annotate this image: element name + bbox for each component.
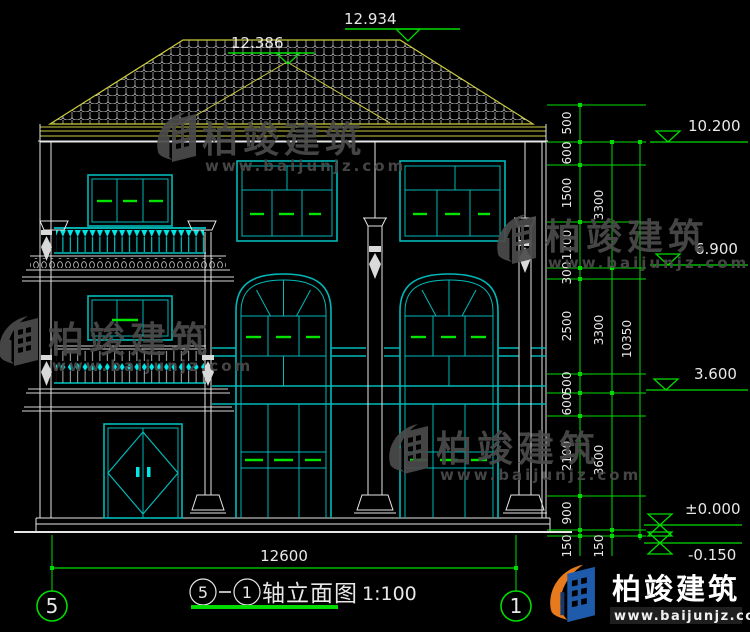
brand-logo-icon [550,565,595,623]
dim-label: 500 [560,112,574,135]
door-handle [147,467,151,477]
grid-bubble-left: 5 [37,591,67,621]
title-underline [191,605,338,609]
cornice-band-lower [22,389,234,411]
dim-chain-mid: 3300 3300 3600 150 [592,140,614,557]
title-grid-end: 1 [242,583,252,602]
dim-label: 150 [560,535,574,558]
dim-label: 900 [560,502,574,525]
ridge-low-label: 12.386 [231,34,284,52]
watermark-logo-icon [497,214,536,264]
watermark-brand: 柏竣建筑 [48,320,212,361]
dim-label: 600 [560,142,574,165]
elevation-marker-10200: 10.200 [650,117,748,142]
watermark-brand: 柏竣建筑 [545,217,709,258]
title-grid-start: 5 [198,583,208,602]
entry-door [104,424,182,518]
watermark-3: 柏竣建筑 www.baijunjz.com [0,316,253,375]
dim-label-total-height: 10350 [620,320,634,358]
brand-logo-text: 柏竣建筑 [612,572,740,606]
door-handle [136,467,140,477]
dim-label: 1500 [560,178,574,209]
watermark-logo-icon [389,424,428,474]
arched-window-middle [236,274,331,518]
window-3f-right [400,161,505,241]
elevation-label: 10.200 [688,117,741,135]
elevation-drawing-canvas: 12.934 12.386 500 600 1500 1200 300 2500 [0,0,750,632]
dim-chain-inner: 500 600 1500 1200 300 2500 500 600 2100 … [560,103,582,557]
grid-number: 1 [510,594,523,618]
window-3f-left [88,175,172,226]
watermark-url: www.baijunjz.com [205,157,406,175]
brand-logo-url: www.baijunjz.com [614,609,750,624]
cornice-band-upper [22,256,234,281]
elevation-label: -0.150 [688,546,736,564]
dim-label: 2500 [560,311,574,342]
casement-marks [245,337,321,460]
watermark-url: www.baijunjz.com [548,254,749,272]
dim-label: 150 [592,535,606,558]
watermark-logo-icon [0,316,38,366]
elevation-label: 3.600 [694,365,737,383]
dim-label: 600 [560,393,574,416]
grid-bubble-right: 1 [501,591,531,621]
elevation-marker-zero: ±0.000 [644,500,742,536]
ridge-high-label: 12.934 [344,10,397,28]
watermark-brand: 柏竣建筑 [436,429,600,470]
corner-pilaster-left [41,230,52,386]
title-block: 5 1 轴立面图 1:100 [190,579,417,609]
dim-label: 500 [560,372,574,395]
watermark-url: www.baijunjz.com [52,357,253,375]
watermark-url: www.baijunjz.com [440,466,641,484]
elevation-label: ±0.000 [685,500,741,518]
dim-label-overall-width: 12600 [260,547,308,565]
drawing-scale: 1:100 [362,583,417,605]
ridge-dim-high: 12.934 [344,10,460,41]
dim-label: 3300 [592,315,606,346]
drawing-title: 轴立面图 [262,581,358,607]
brand-logo: 柏竣建筑 www.baijunjz.com [550,565,750,624]
elevation-markers: 10.200 6.900 3.600 ±0.000 -0.150 [644,117,748,564]
dim-label: 3300 [592,190,606,221]
cad-elevation-viewport: 12.934 12.386 500 600 1500 1200 300 2500 [0,0,750,632]
grid-number: 5 [46,594,59,618]
elevation-marker-minus150: -0.150 [644,532,742,564]
watermark-brand: 柏竣建筑 [202,120,366,161]
elevation-marker-3600: 3.600 [646,365,748,390]
